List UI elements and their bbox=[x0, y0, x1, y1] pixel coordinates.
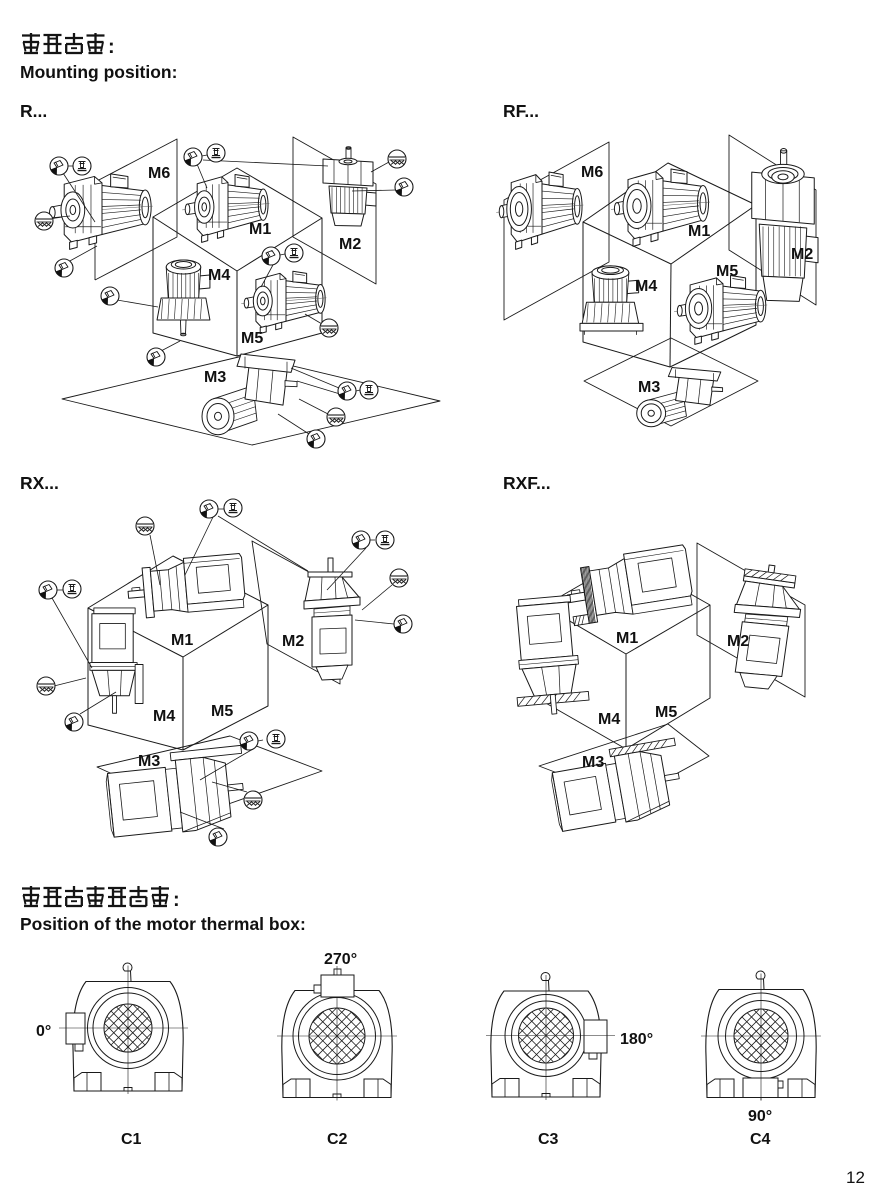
svg-text:Position of the motor thermal: Position of the motor thermal box: bbox=[20, 914, 306, 934]
svg-text:270°: 270° bbox=[324, 951, 357, 968]
svg-text:Mounting position:: Mounting position: bbox=[20, 62, 177, 82]
svg-text:M3: M3 bbox=[138, 753, 160, 770]
svg-text:R...: R... bbox=[20, 101, 47, 121]
svg-text:M2: M2 bbox=[282, 633, 304, 650]
svg-text:M1: M1 bbox=[171, 632, 193, 649]
svg-text::: : bbox=[173, 889, 180, 911]
svg-text:M5: M5 bbox=[211, 703, 233, 720]
svg-text:M6: M6 bbox=[581, 164, 603, 181]
svg-text:M3: M3 bbox=[582, 754, 604, 771]
svg-text:M4: M4 bbox=[635, 278, 657, 295]
svg-text:M6: M6 bbox=[148, 165, 170, 182]
svg-text:RF...: RF... bbox=[503, 101, 539, 121]
svg-text:M3: M3 bbox=[204, 369, 226, 386]
svg-text:C1: C1 bbox=[121, 1131, 142, 1148]
svg-text:M2: M2 bbox=[339, 236, 361, 253]
svg-text:M3: M3 bbox=[638, 379, 660, 396]
svg-text:M4: M4 bbox=[598, 711, 620, 728]
svg-text:M4: M4 bbox=[208, 267, 230, 284]
svg-text:C2: C2 bbox=[327, 1131, 348, 1148]
svg-text:C3: C3 bbox=[538, 1131, 559, 1148]
svg-text:M1: M1 bbox=[249, 221, 271, 238]
svg-text:12: 12 bbox=[846, 1168, 865, 1187]
svg-text:M5: M5 bbox=[655, 704, 677, 721]
svg-text:M2: M2 bbox=[727, 633, 749, 650]
svg-text:M1: M1 bbox=[616, 630, 638, 647]
svg-text:M2: M2 bbox=[791, 246, 813, 263]
svg-text:M1: M1 bbox=[688, 223, 710, 240]
svg-text:C4: C4 bbox=[750, 1131, 771, 1148]
svg-text:RX...: RX... bbox=[20, 473, 59, 493]
svg-text:M5: M5 bbox=[716, 263, 738, 280]
svg-text:180°: 180° bbox=[620, 1031, 653, 1048]
svg-text:90°: 90° bbox=[748, 1108, 772, 1125]
svg-text:RXF...: RXF... bbox=[503, 473, 551, 493]
svg-text:0°: 0° bbox=[36, 1023, 51, 1040]
svg-text:M5: M5 bbox=[241, 330, 263, 347]
svg-text:M4: M4 bbox=[153, 708, 175, 725]
svg-text::: : bbox=[108, 36, 115, 58]
